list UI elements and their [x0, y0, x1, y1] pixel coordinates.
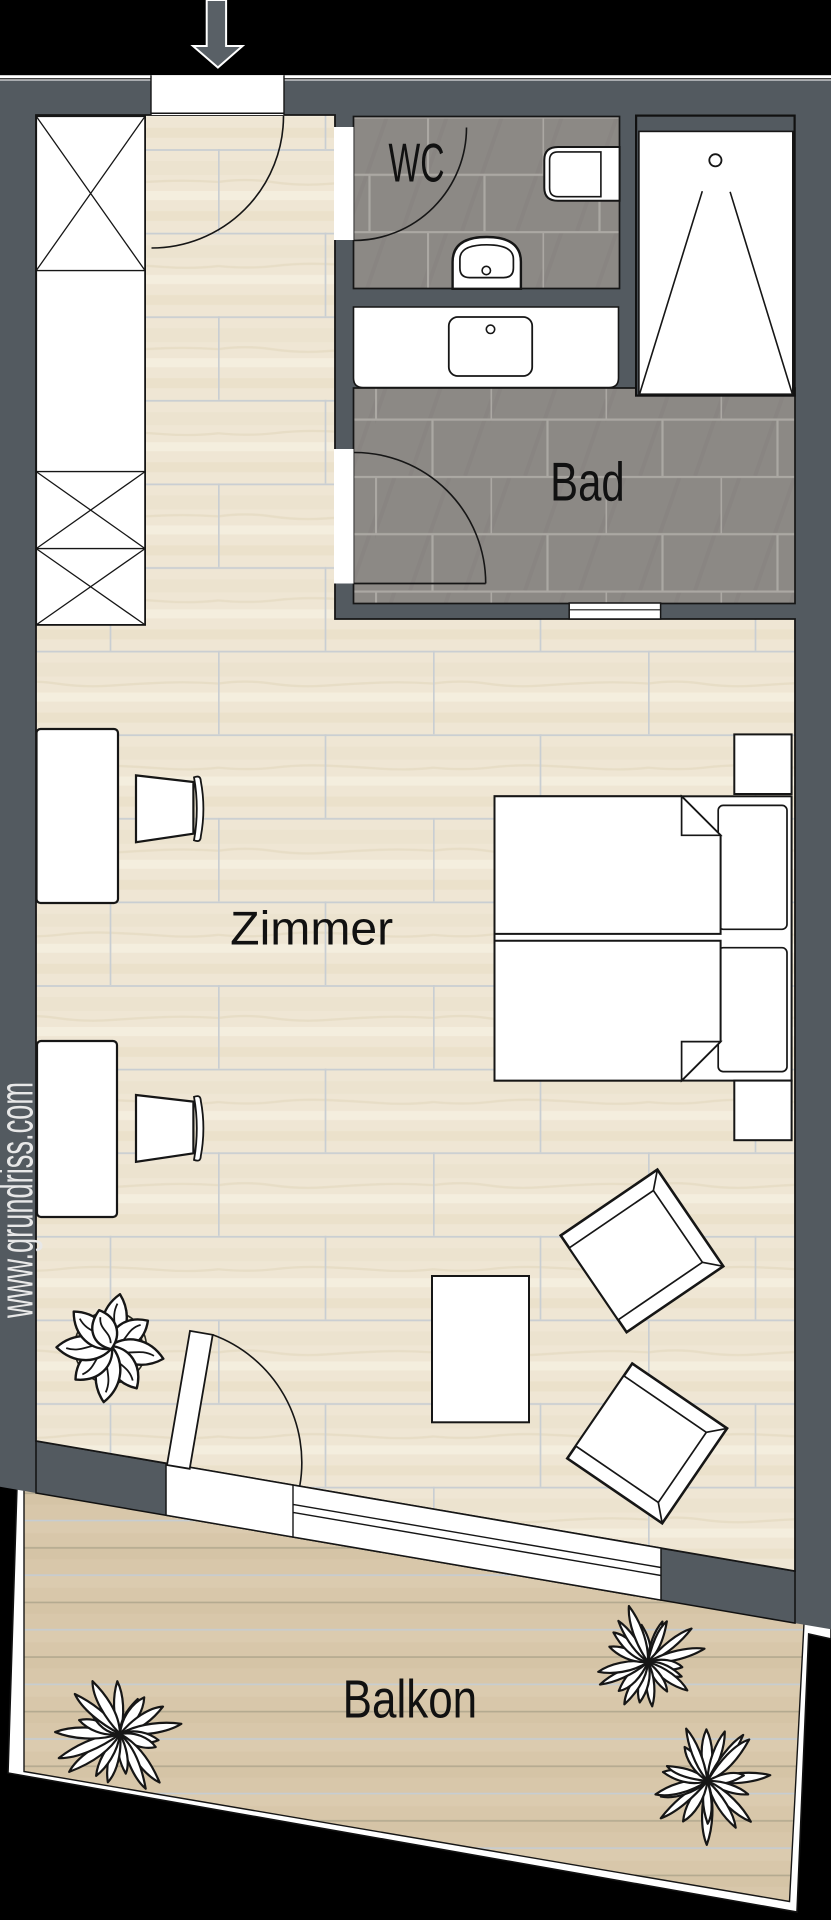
svg-text:www.grundriss.com: www.grundriss.com — [0, 1082, 43, 1319]
svg-text:WC: WC — [389, 131, 445, 193]
svg-text:Zimmer: Zimmer — [230, 902, 393, 955]
svg-text:Bad: Bad — [550, 451, 625, 513]
svg-text:Balkon: Balkon — [343, 1670, 478, 1729]
